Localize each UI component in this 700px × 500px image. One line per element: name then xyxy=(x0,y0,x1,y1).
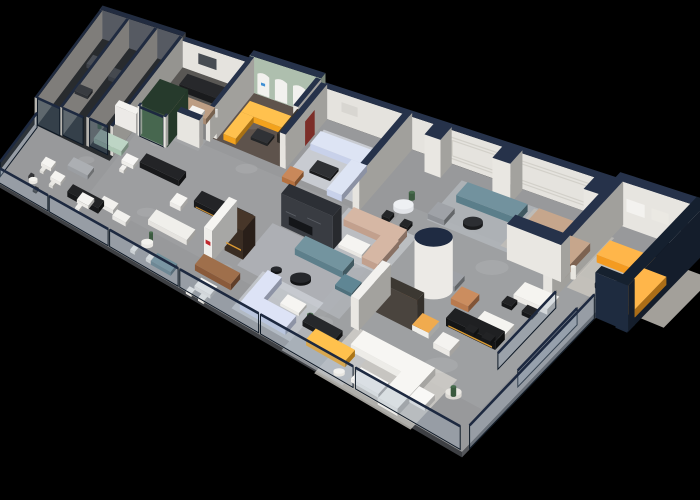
round-table-black xyxy=(463,217,483,230)
case-frame-post xyxy=(163,113,168,148)
dining-table-round xyxy=(393,199,413,214)
round-dining-table xyxy=(141,239,153,248)
side-table-white xyxy=(333,368,344,376)
plant xyxy=(451,385,457,397)
arch-panel xyxy=(275,79,287,104)
display-pillar xyxy=(425,122,452,178)
round-dining-table xyxy=(29,177,38,184)
light-pool xyxy=(236,164,258,174)
round-table-black xyxy=(290,273,311,286)
plant xyxy=(409,191,415,201)
showroom-render xyxy=(0,0,700,500)
light-pool xyxy=(475,260,508,275)
floor-lamp xyxy=(571,265,576,280)
round-column xyxy=(414,228,452,300)
floorplan-scene-svg xyxy=(0,0,700,500)
floor-lamp xyxy=(215,109,218,118)
